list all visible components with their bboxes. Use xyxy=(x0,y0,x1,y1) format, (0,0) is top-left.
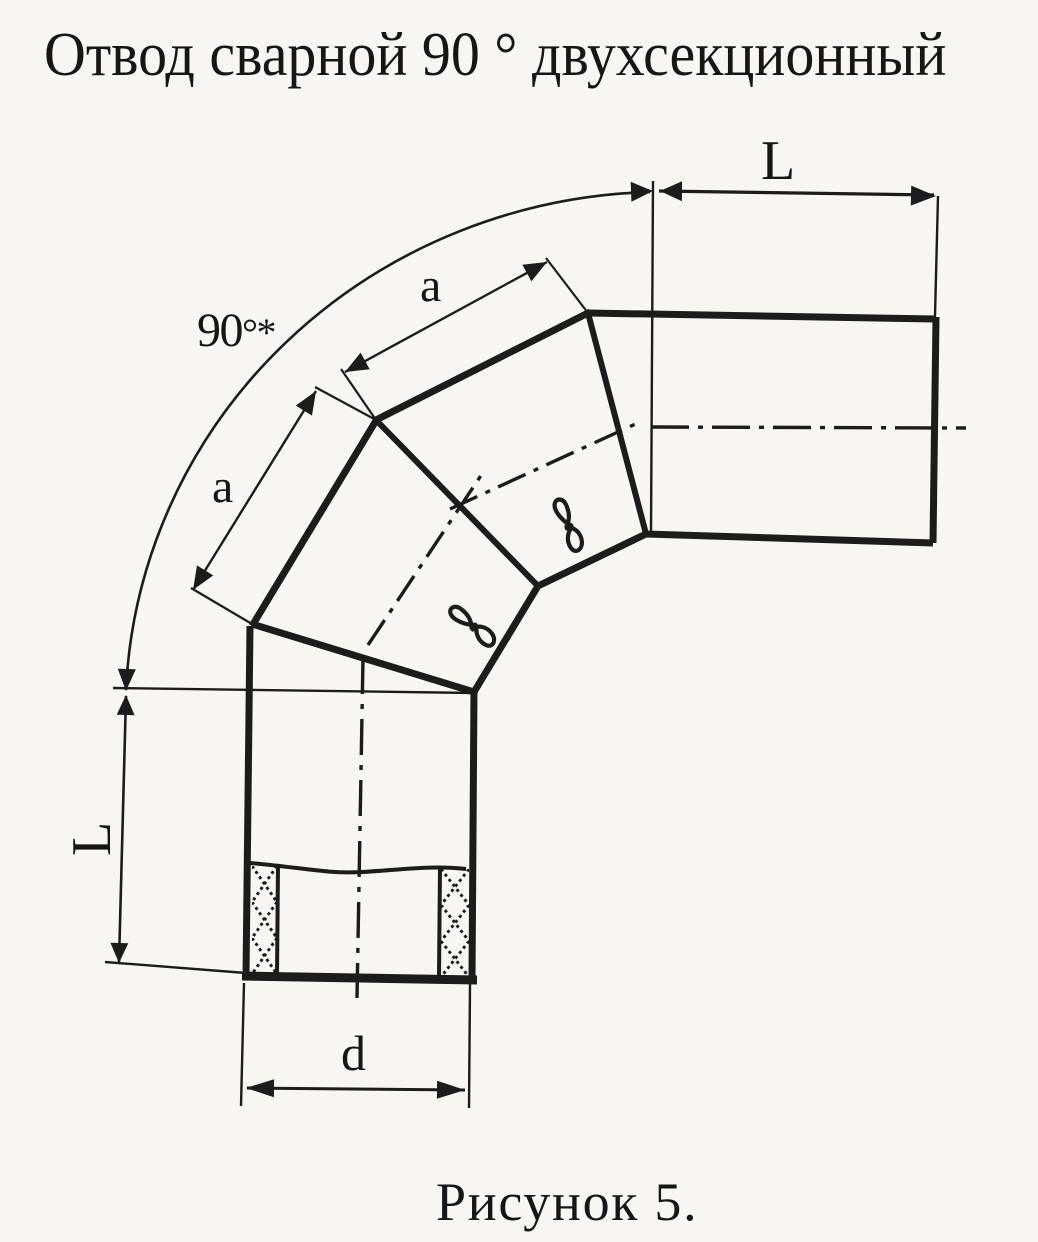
svg-text:a: a xyxy=(420,259,441,312)
svg-text:a: a xyxy=(212,460,233,513)
svg-text:d: d xyxy=(341,1025,366,1081)
svg-text:Отвод сварной 90 ° двухсекцион: Отвод сварной 90 ° двухсекционный xyxy=(44,20,946,90)
svg-text:Рисунок 5.: Рисунок 5. xyxy=(436,1172,698,1232)
svg-text:L: L xyxy=(61,822,123,856)
svg-text:90°*: 90°* xyxy=(197,304,275,357)
svg-text:L: L xyxy=(761,130,795,192)
